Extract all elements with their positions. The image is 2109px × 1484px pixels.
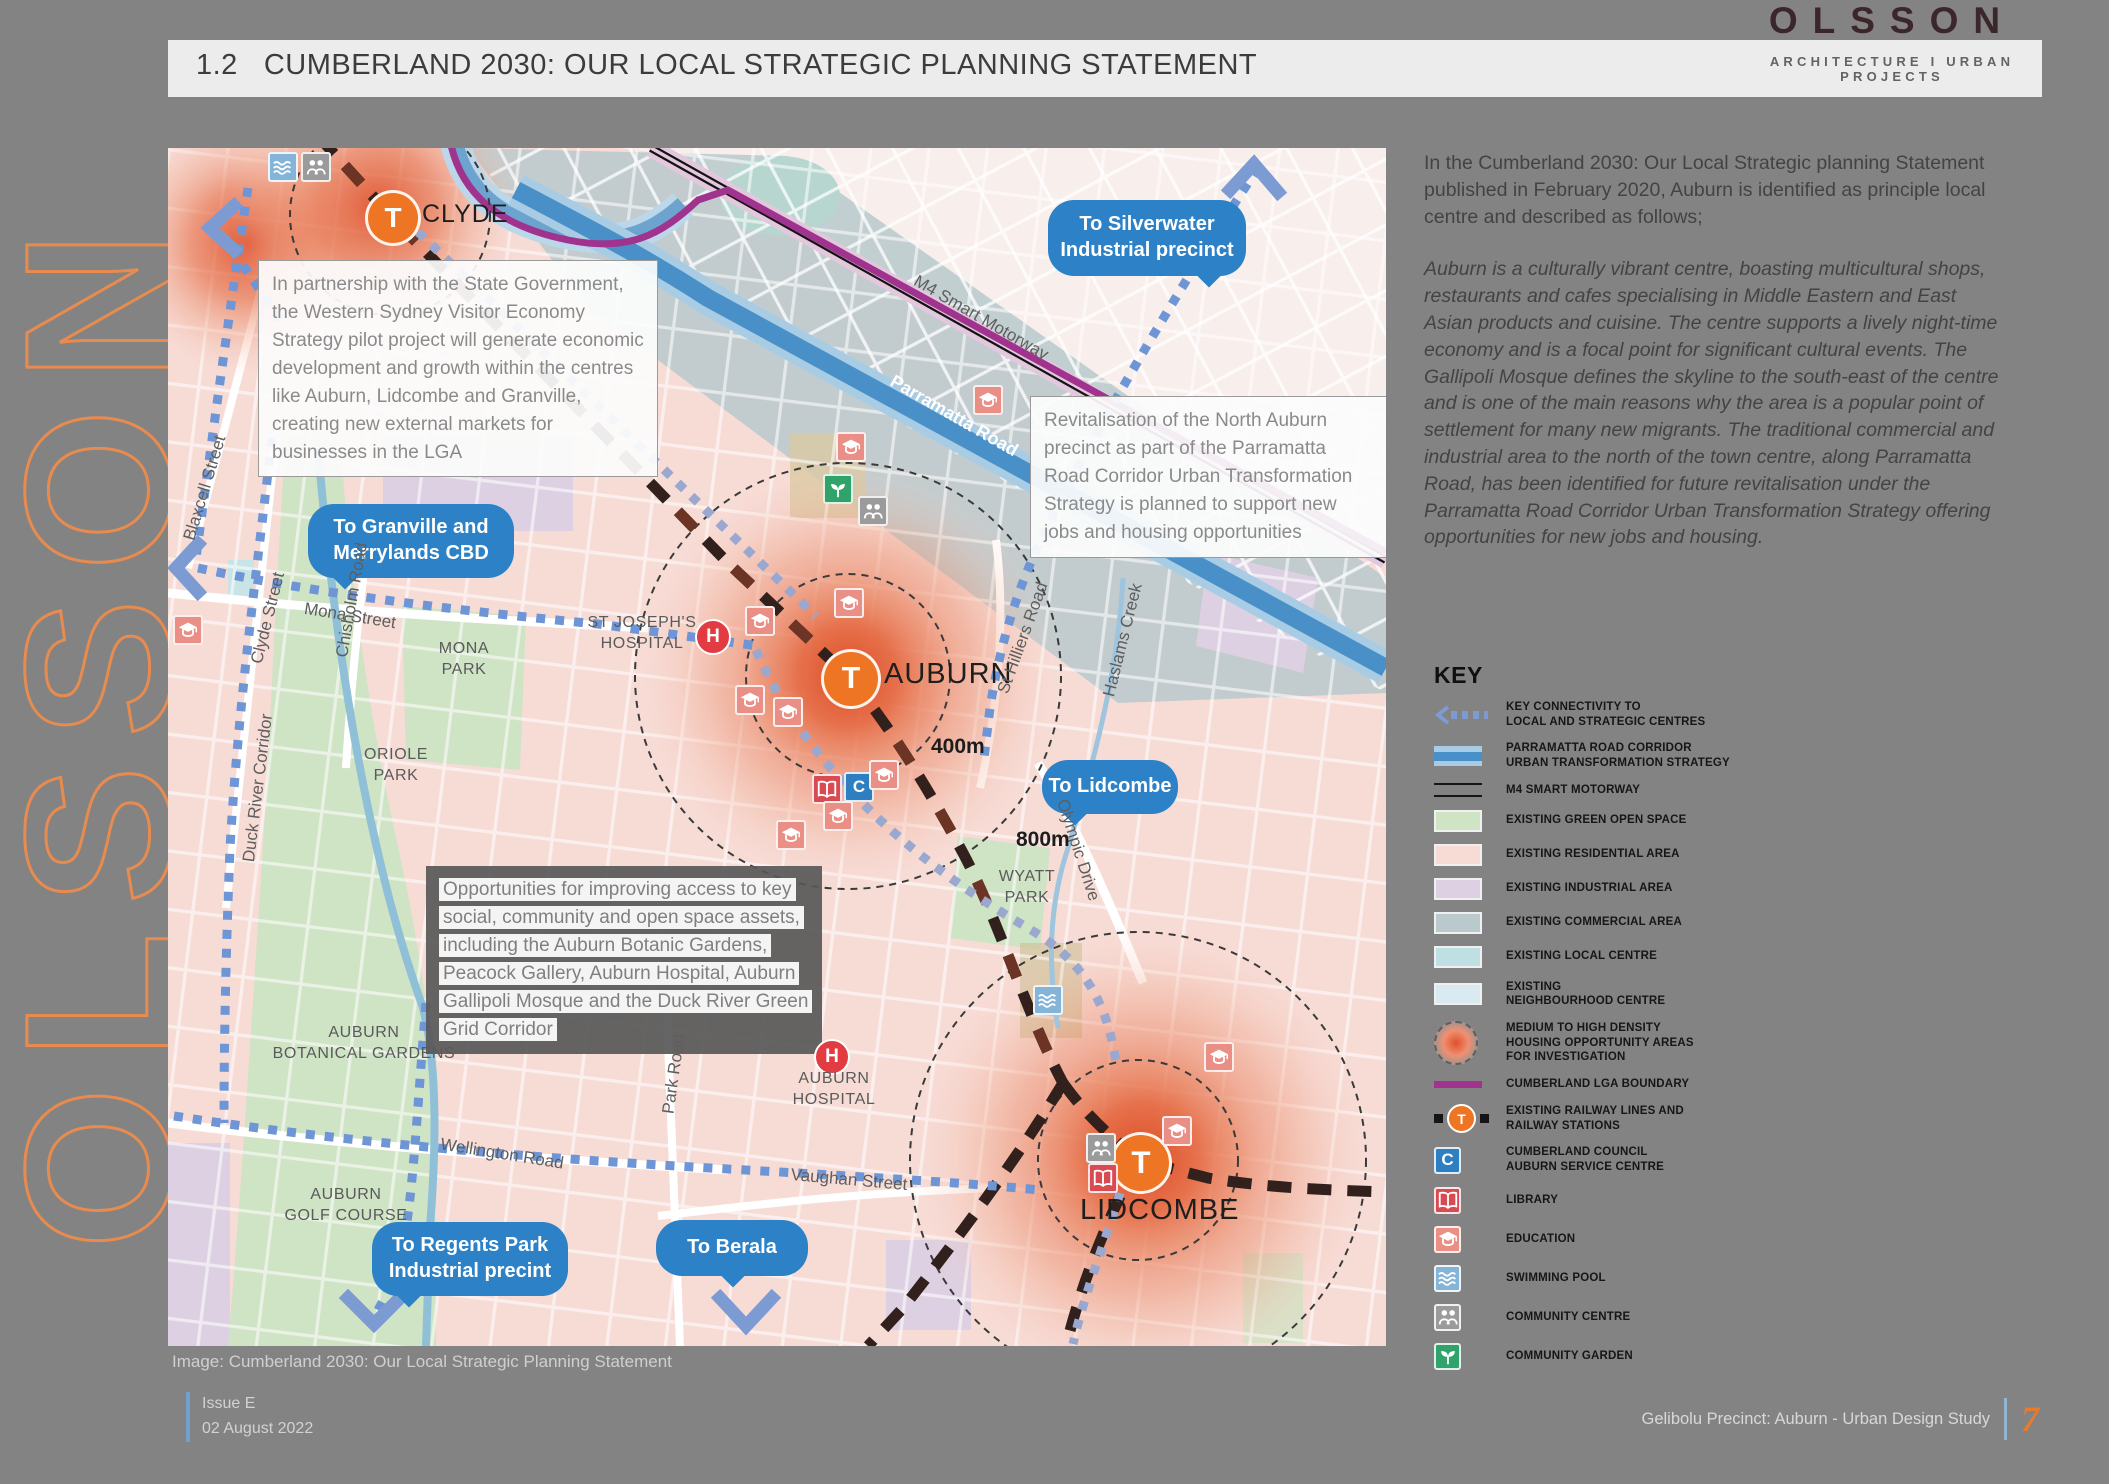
education-icon [1434,1226,1461,1253]
map-overlays: In partnership with the State Government… [168,148,1386,1346]
legend-item-swimming-pool: SWIMMING POOL [1434,1265,1994,1292]
legend-label-local-centre: EXISTING LOCAL CENTRE [1506,949,1657,964]
brand-tagline: ARCHITECTURE I URBAN PROJECTS [1742,54,2042,84]
map-note-partnership: In partnership with the State Government… [258,260,658,477]
hospital-label-st-josephs: ST JOSEPH'S HOSPITAL [588,613,697,655]
color-swatch [1434,810,1482,832]
community-garden-icon [1434,1343,1461,1370]
legend-item-motorway: M4 SMART MOTORWAY [1434,783,1994,798]
area-label-mona-park: MONA PARK [439,639,489,681]
railway-legend-icon: T [1434,1104,1489,1133]
page-title: 1.2CUMBERLAND 2030: OUR LOCAL STRATEGIC … [196,49,1257,82]
walking-radius-label-r800: 800m [1016,828,1070,852]
education-icon [173,615,203,645]
library-icon [1434,1187,1461,1214]
railway-station-icon-auburn: T [821,649,881,709]
legend-item-council: CCUMBERLAND COUNCIL AUBURN SERVICE CENTR… [1434,1145,1994,1174]
community-centre-icon [1086,1133,1116,1163]
rail-dash [1434,1114,1443,1123]
legend-item-connectivity: KEY CONNECTIVITY TO LOCAL AND STRATEGIC … [1434,700,1994,729]
street-label-st-hilliers: St Hilliers Road [994,580,1053,697]
direction-bubble-berala: To Berala [656,1220,808,1276]
intro-paragraph: In the Cumberland 2030: Our Local Strate… [1424,150,2008,230]
color-swatch [1434,878,1482,900]
legend-item-corridor: PARRAMATTA ROAD CORRIDOR URBAN TRANSFORM… [1434,741,1994,770]
community-centre-icon [858,496,888,526]
street-label-duck-river: Duck River Corridor [239,713,277,864]
legend-swatch-corridor [1434,746,1492,766]
legend-swatch-community-centre [1434,1304,1492,1331]
community-garden-icon [823,474,853,504]
legend-label-library: LIBRARY [1506,1193,1558,1208]
legend-label-lga-boundary: CUMBERLAND LGA BOUNDARY [1506,1077,1689,1092]
street-label-blaxcell: Blaxcell Street [180,433,231,543]
legend-item-residential: EXISTING RESIDENTIAL AREA [1434,844,1994,866]
section-number: 1.2 [196,49,238,81]
direction-bubble-granville: To Granville and Merrylands CBD [308,504,514,578]
street-label-haslams: Haslams Creek [1099,581,1147,699]
lga-boundary-icon [1434,1081,1482,1088]
legend-label-residential: EXISTING RESIDENTIAL AREA [1506,847,1680,862]
map-note-opportunities: Opportunities for improving access to ke… [426,866,822,1054]
bubble-text: To Lidcombe [1049,774,1172,800]
legend-swatch-railway: T [1434,1104,1492,1133]
area-label-botanical: AUBURN BOTANICAL GARDENS [273,1023,456,1065]
hospital-label-auburn-hospital: AUBURN HOSPITAL [793,1069,876,1111]
legend-label-industrial: EXISTING INDUSTRIAL AREA [1506,881,1672,896]
station-t-icon: T [1447,1104,1476,1133]
legend-swatch-council: C [1434,1147,1492,1174]
street-label-clyde-st: Clyde Street [247,570,289,666]
map-caption: Image: Cumberland 2030: Our Local Strate… [172,1352,672,1372]
library-icon [812,774,842,804]
legend-swatch-education [1434,1226,1492,1253]
legend-swatch-library [1434,1187,1492,1214]
legend-label-connectivity: KEY CONNECTIVITY TO LOCAL AND STRATEGIC … [1506,700,1705,729]
legend-item-neighbourhood-centre: EXISTING NEIGHBOURHOOD CENTRE [1434,980,1994,1009]
legend-item-industrial: EXISTING INDUSTRIAL AREA [1434,878,1994,900]
legend-item-housing-opportunity: MEDIUM TO HIGH DENSITY HOUSING OPPORTUNI… [1434,1021,1994,1065]
legend-label-community-garden: COMMUNITY GARDEN [1506,1349,1633,1364]
legend-item-railway: TEXISTING RAILWAY LINES AND RAILWAY STAT… [1434,1104,1994,1133]
education-icon [1204,1042,1234,1072]
station-label-clyde: CLYDE [422,200,509,229]
direction-bubble-silverwater: To Silverwater Industrial precinct [1048,200,1246,276]
connectivity-arrow-icon [1434,703,1490,727]
legend-label-commercial: EXISTING COMMERCIAL AREA [1506,915,1682,930]
area-label-oriole-park: ORIOLE PARK [364,745,428,787]
legend-label-corridor: PARRAMATTA ROAD CORRIDOR URBAN TRANSFORM… [1506,741,1730,770]
rail-dash [1480,1114,1489,1123]
legend-label-motorway: M4 SMART MOTORWAY [1506,783,1640,798]
education-icon [773,697,803,727]
legend-swatch-neighbourhood-centre [1434,983,1492,1005]
legend-label-education: EDUCATION [1506,1232,1575,1247]
area-label-golf: AUBURN GOLF COURSE [284,1185,407,1227]
station-label-auburn: AUBURN [884,658,1012,691]
bubble-text: To Regents Park Industrial precint [389,1233,551,1284]
walking-radius-label-r400: 400m [931,735,985,759]
page-number: 7 [2021,1398,2039,1440]
street-label-m4: M4 Smart Motorway [910,271,1052,364]
legend-swatch-local-centre [1434,946,1492,968]
legend-label-community-centre: COMMUNITY CENTRE [1506,1310,1630,1325]
street-label-wellington: Wellington Road [439,1134,565,1173]
swimming-pool-icon [268,152,298,182]
legend-swatch-housing-opportunity [1434,1021,1492,1065]
legend-item-lga-boundary: CUMBERLAND LGA BOUNDARY [1434,1077,1994,1092]
swimming-pool-icon [1033,985,1063,1015]
legend-swatch-swimming-pool [1434,1265,1492,1292]
legend-label-swimming-pool: SWIMMING POOL [1506,1271,1606,1286]
education-icon [823,801,853,831]
education-icon [836,432,866,462]
legend-swatch-industrial [1434,878,1492,900]
olsson-logo: OLSSON [1742,0,2042,42]
motorway-line-icon [1434,783,1482,797]
education-icon [834,588,864,618]
corridor-band-icon [1434,746,1482,766]
housing-opportunity-icon [1434,1021,1478,1065]
education-icon [735,685,765,715]
footer-doc-title: Gelibolu Precinct: Auburn - Urban Design… [1641,1410,1990,1429]
legend-label-neighbourhood-centre: EXISTING NEIGHBOURHOOD CENTRE [1506,980,1665,1009]
library-icon [1088,1163,1118,1193]
color-swatch [1434,912,1482,934]
legend-label-railway: EXISTING RAILWAY LINES AND RAILWAY STATI… [1506,1104,1684,1133]
color-swatch [1434,983,1482,1005]
footer: Gelibolu Precinct: Auburn - Urban Design… [1641,1398,2039,1440]
legend-item-green-open-space: EXISTING GREEN OPEN SPACE [1434,810,1994,832]
education-icon [869,760,899,790]
community-centre-icon [301,152,331,182]
planning-map: In partnership with the State Government… [168,148,1386,1346]
legend-swatch-lga-boundary [1434,1081,1492,1088]
legend-item-community-centre: COMMUNITY CENTRE [1434,1304,1994,1331]
key-title: KEY [1434,662,1483,689]
map-note-revitalisation: Revitalisation of the North Auburn preci… [1030,396,1386,558]
legend-swatch-community-garden [1434,1343,1492,1370]
section-title: CUMBERLAND 2030: OUR LOCAL STRATEGIC PLA… [264,49,1257,81]
council-icon: C [1434,1147,1461,1174]
hospital-icon-st-josephs: H [695,619,731,655]
legend-item-community-garden: COMMUNITY GARDEN [1434,1343,1994,1370]
map-key-legend: KEY CONNECTIVITY TO LOCAL AND STRATEGIC … [1434,700,1994,1382]
quote-paragraph: Auburn is a culturally vibrant centre, b… [1424,256,2008,551]
direction-bubble-regents: To Regents Park Industrial precint [372,1222,568,1296]
legend-label-council: CUMBERLAND COUNCIL AUBURN SERVICE CENTRE [1506,1145,1664,1174]
legend-swatch-commercial [1434,912,1492,934]
color-swatch [1434,946,1482,968]
railway-station-icon-clyde: T [365,190,421,246]
legend-swatch-green-open-space [1434,810,1492,832]
legend-item-commercial: EXISTING COMMERCIAL AREA [1434,912,1994,934]
legend-label-housing-opportunity: MEDIUM TO HIGH DENSITY HOUSING OPPORTUNI… [1506,1021,1694,1065]
footer-divider [2004,1398,2007,1440]
issue-info: Issue E 02 August 2022 [186,1392,313,1442]
education-icon [776,820,806,850]
swimming-pool-icon [1434,1265,1461,1292]
document-page: OLSSON 1.2CUMBERLAND 2030: OUR LOCAL STR… [0,0,2109,1484]
community-centre-icon [1434,1304,1461,1331]
station-label-lidcombe: LIDCOMBE [1080,1194,1239,1227]
bubble-tail [717,1256,748,1287]
legend-swatch-motorway [1434,783,1492,797]
education-icon [745,606,775,636]
legend-item-education: EDUCATION [1434,1226,1994,1253]
legend-item-library: LIBRARY [1434,1187,1994,1214]
legend-label-green-open-space: EXISTING GREEN OPEN SPACE [1506,813,1687,828]
education-icon [1162,1116,1192,1146]
legend-item-local-centre: EXISTING LOCAL CENTRE [1434,946,1994,968]
sidebar-text: In the Cumberland 2030: Our Local Strate… [1424,150,2008,577]
legend-swatch-residential [1434,844,1492,866]
legend-swatch-connectivity [1434,703,1492,727]
education-icon [973,385,1003,415]
area-label-wyatt: WYATT PARK [999,867,1056,909]
street-label-vaughan: Vaughan Street [790,1165,908,1195]
color-swatch [1434,844,1482,866]
